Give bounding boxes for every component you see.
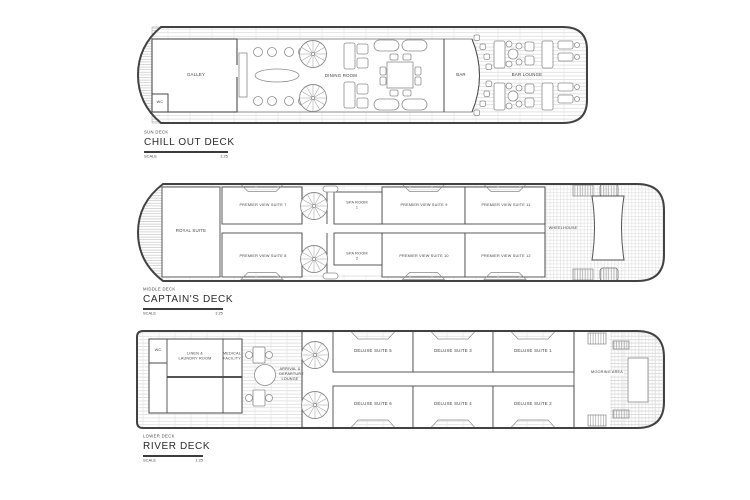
deck3-scale-value: 1:25	[195, 459, 203, 463]
arrival-lounge-label: ARRIVAL & DEPARTURE LOUNGE	[279, 368, 300, 383]
service-block	[149, 339, 242, 413]
spa-2-label: SPA ROOM 2	[346, 252, 367, 262]
spa-1-label: SPA ROOM 1	[346, 201, 367, 211]
deck3-title-rule	[143, 455, 203, 457]
deck3-subtitle: LOWER DECK	[143, 435, 207, 439]
mooring-area-label: MOORING AREA	[590, 371, 623, 376]
deck-plan-sheet: GALLEY WC DINING ROOM BAR BAR LOUNGE SUN…	[0, 0, 750, 500]
bar-lounge-label: BAR LOUNGE	[512, 73, 542, 79]
deck2-scale-label: SCALE	[143, 312, 156, 316]
wc-label-deck3: WC	[155, 349, 162, 354]
deluxe-4-label: DELUXE SUITE 4	[434, 402, 472, 408]
deck2-title-rule	[143, 308, 223, 310]
premier-12-label: PREMIER VIEW SUITE 12	[481, 255, 530, 260]
deck3-title: RIVER DECK	[143, 441, 234, 452]
deluxe-1-label: DELUXE SUITE 1	[514, 349, 552, 355]
royal-suite-label: ROYAL SUITE	[176, 229, 206, 235]
deck1-title-block: SUN DECK CHILL OUT DECK SCALE 1:25	[144, 130, 271, 161]
deck3-title-block: LOWER DECK RIVER DECK SCALE 1:25	[143, 434, 234, 465]
deluxe-5-label: DELUXE SUITE 5	[354, 349, 392, 355]
deck2-subtitle: MIDDLE DECK	[143, 288, 228, 292]
captains-deck-drawing	[135, 182, 666, 283]
dining-room-label: DINING ROOM	[325, 74, 357, 80]
premier-10-label: PREMIER VIEW SUITE 10	[399, 255, 448, 260]
premier-9-label: PREMIER VIEW SUITE 9	[400, 204, 447, 209]
bar-label: BAR	[456, 73, 466, 79]
deck1-scale-row: SCALE 1:25	[144, 155, 228, 159]
bow-hatching-deck2	[138, 184, 163, 280]
linen-laundry-label: LINEN & LAUNDRY ROOM	[177, 352, 212, 362]
deck2-title: CAPTAIN'S DECK	[143, 294, 264, 305]
galley-label: GALLEY	[187, 73, 205, 79]
deck1-scale-label: SCALE	[144, 155, 157, 159]
premier-11-label: PREMIER VIEW SUITE 11	[481, 204, 530, 209]
deck1-title-rule	[144, 151, 228, 153]
wheelhouse-label: WHEELHOUSE	[549, 227, 578, 232]
premier-8-label: PREMIER VIEW SUITE 8	[239, 255, 286, 260]
deck3-scale-label: SCALE	[143, 459, 156, 463]
deluxe-2-label: DELUXE SUITE 2	[514, 402, 552, 408]
deck2-scale-value: 1:25	[215, 312, 223, 316]
deck1-title: CHILL OUT DECK	[144, 137, 271, 148]
deck3-scale-row: SCALE 1:25	[143, 459, 203, 463]
deck2-title-block: MIDDLE DECK CAPTAIN'S DECK SCALE 1:25	[143, 287, 264, 318]
deck1-subtitle: SUN DECK	[144, 131, 233, 135]
premier-7-label: PREMIER VIEW SUITE 7	[239, 204, 286, 209]
deluxe-6-label: DELUXE SUITE 6	[354, 402, 392, 408]
deck2-scale-row: SCALE 1:25	[143, 312, 223, 316]
medical-facility-label: MEDICAL FACILITY	[223, 352, 242, 362]
wc-label-deck1: WC	[157, 101, 164, 106]
deck1-scale-value: 1:25	[220, 155, 228, 159]
river-deck-drawing	[135, 329, 666, 430]
deluxe-3-label: DELUXE SUITE 3	[434, 349, 472, 355]
